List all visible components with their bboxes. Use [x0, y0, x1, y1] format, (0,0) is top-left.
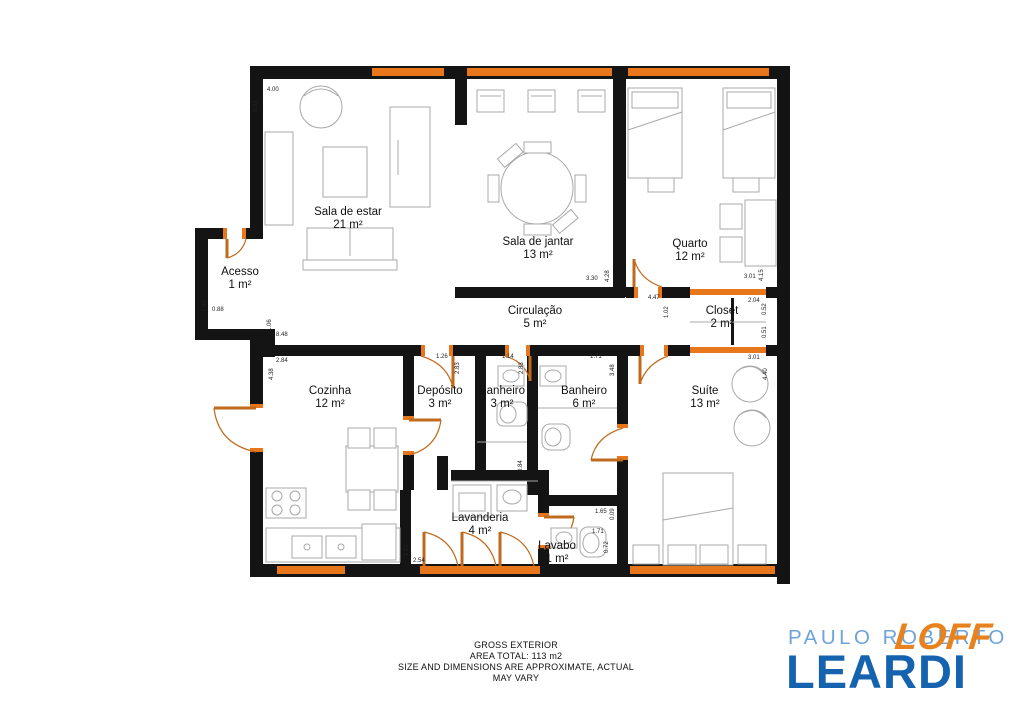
- dimension-label: 3.01: [744, 274, 756, 280]
- dimension-label: 5.51: [253, 100, 259, 112]
- dimension-label: 8.48: [276, 332, 288, 338]
- dimension-label: 2.04: [748, 298, 760, 304]
- dimension-label: 1.65: [595, 509, 607, 515]
- floor-plan-svg: [0, 0, 1024, 723]
- dimension-label: 3.01: [748, 355, 760, 361]
- dimension-label: 1.71: [590, 354, 602, 360]
- dimension-label: 0.84: [518, 460, 524, 472]
- room-label-banheiro-6: Banheiro6 m²: [561, 385, 607, 411]
- dimension-label: 3.48: [610, 364, 616, 376]
- dimension-label: 0.09: [610, 508, 616, 520]
- footer-line: MAY VARY: [316, 673, 716, 684]
- dimension-label: 1.06: [267, 319, 273, 331]
- logo-loff-badge: LOFF: [893, 616, 994, 658]
- dimension-label: 1.71: [592, 529, 604, 535]
- dimension-label: 0.51: [762, 326, 768, 338]
- footer-disclaimer: GROSS EXTERIOR AREA TOTAL: 113 m2 SIZE A…: [316, 640, 716, 684]
- room-label-cozinha: Cozinha12 m²: [309, 385, 351, 411]
- dimension-label: 3.30: [586, 276, 598, 282]
- dimension-label: 2.83: [455, 362, 461, 374]
- dimension-label: 1.40: [202, 300, 208, 312]
- room-label-sala-de-jantar: Sala de jantar13 m²: [503, 236, 574, 262]
- dimension-label: 4.47: [648, 295, 660, 301]
- dimension-label: 4.15: [759, 269, 765, 281]
- dimension-label: 1.61: [404, 544, 410, 556]
- room-label-acesso: Acesso1 m²: [221, 266, 259, 292]
- room-label-deposito: Depósito3 m²: [417, 385, 462, 411]
- room-label-quarto: Quarto12 m²: [672, 238, 707, 264]
- dimension-label: 1.02: [664, 306, 670, 318]
- footer-line: SIZE AND DIMENSIONS ARE APPROXIMATE, ACT…: [316, 662, 716, 673]
- floor-plan: Sala de estar21 m² Sala de jantar13 m² Q…: [0, 0, 1024, 723]
- footer-line: GROSS EXTERIOR: [316, 640, 716, 651]
- dimension-label: 0.72: [604, 541, 610, 553]
- room-label-lavanderia: Lavanderia4 m²: [452, 512, 509, 538]
- dimension-label: 0.88: [212, 307, 224, 313]
- dimension-label: 4.28: [605, 270, 611, 282]
- dining-room-furniture: [477, 90, 605, 235]
- dimension-label: 0.52: [762, 303, 768, 315]
- room-label-sala-de-estar: Sala de estar21 m²: [314, 206, 382, 232]
- dimension-label: 2.54: [413, 558, 425, 564]
- dimension-label: 1.14: [502, 354, 514, 360]
- room-label-circulacao: Circulação5 m²: [508, 305, 562, 331]
- dimension-label: 4.38: [269, 368, 275, 380]
- room-label-lavabo: Lavabo1 m²: [538, 540, 576, 566]
- footer-line: AREA TOTAL: 113 m2: [316, 651, 716, 662]
- room-label-banheiro-3: Banheiro3 m²: [479, 385, 525, 411]
- leardi-logo: PAULO ROBERTO LOFF LEARDI: [783, 618, 1015, 708]
- living-room-furniture: [265, 86, 430, 270]
- dimension-label: 1.26: [436, 354, 448, 360]
- dimension-label: 2.83: [519, 362, 525, 374]
- room-label-closet: Closet2 m²: [706, 305, 739, 331]
- dimension-label: 4.00: [267, 87, 279, 93]
- dimension-label: 4.40: [763, 368, 769, 380]
- kitchen-furniture: [266, 428, 400, 562]
- room-label-suite: Suíte13 m²: [690, 385, 719, 411]
- dimension-label: 2.84: [276, 358, 288, 364]
